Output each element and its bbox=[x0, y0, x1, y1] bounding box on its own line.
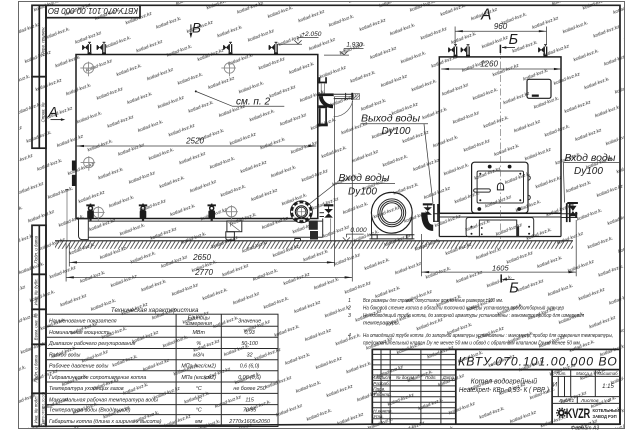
svg-text:°С: °С bbox=[196, 386, 202, 392]
svg-text:Температура уходящих газов: Температура уходящих газов bbox=[49, 386, 124, 392]
svg-text:0,93: 0,93 bbox=[244, 330, 254, 336]
svg-text:Справ. №: Справ. № bbox=[41, 102, 46, 122]
svg-text:Разраб.: Разраб. bbox=[373, 381, 390, 386]
svg-text:КОТЕЛЬНЫЙ: КОТЕЛЬНЫЙ bbox=[593, 408, 620, 413]
svg-text:Номинальная мощность: Номинальная мощность bbox=[49, 330, 111, 336]
svg-text:На подводящий трубе котла, до: На подводящий трубе котла, до запорной а… bbox=[363, 312, 584, 319]
svg-text:мм: мм bbox=[195, 419, 203, 425]
svg-text:Инв. № дубл.: Инв. № дубл. bbox=[33, 278, 38, 305]
svg-text:1: 1 bbox=[348, 298, 351, 304]
svg-text:не более 250: не более 250 bbox=[233, 386, 265, 392]
svg-text:Подп. и дата: Подп. и дата bbox=[33, 236, 38, 264]
svg-text:А: А bbox=[480, 7, 491, 24]
svg-text:КВТУ.070.101.00.000 ВО: КВТУ.070.101.00.000 ВО bbox=[48, 6, 138, 15]
svg-text:см. п. 2: см. п. 2 bbox=[236, 96, 270, 107]
svg-text:Подп.: Подп. bbox=[425, 375, 436, 380]
svg-text:2: 2 bbox=[607, 398, 611, 404]
svg-text:КВТУ.070.101.00.000 ВО: КВТУ.070.101.00.000 ВО bbox=[458, 354, 618, 368]
svg-text:Габариты котла (длина х ширина: Габариты котла (длина х ширина х высота) bbox=[49, 419, 162, 425]
svg-text:И: И bbox=[553, 382, 558, 388]
svg-text:Диапазон рабочего регулировани: Диапазон рабочего регулирования bbox=[48, 341, 136, 347]
svg-text:+2.050: +2.050 bbox=[301, 31, 321, 38]
svg-text:На боковой стенке котла в обла: На боковой стенке котла в области топочн… bbox=[363, 305, 564, 312]
svg-text:0,6 (6,0): 0,6 (6,0) bbox=[240, 364, 260, 370]
svg-text:КВТУ.070.101.00.000: КВТУ.070.101.00.000 bbox=[41, 392, 45, 424]
svg-text:1605: 1605 bbox=[492, 264, 510, 273]
svg-text:Котел водогрейный: Котел водогрейный bbox=[471, 377, 538, 385]
svg-text:70/95: 70/95 bbox=[243, 407, 256, 413]
svg-text:Все размеры для справок, допус: Все размеры для справок, допустимое откл… bbox=[363, 298, 503, 304]
svg-text:2520: 2520 bbox=[185, 137, 204, 146]
svg-text:Дата: Дата bbox=[442, 375, 455, 380]
svg-text:50-100: 50-100 bbox=[241, 341, 258, 347]
svg-text:Пров.: Пров. bbox=[373, 387, 385, 392]
svg-text:2650: 2650 bbox=[192, 253, 211, 262]
svg-text:Лист: Лист bbox=[379, 375, 391, 380]
svg-text:Максимальная рабочая температу: Максимальная рабочая температура воды bbox=[49, 397, 158, 403]
svg-text:Н.контр.: Н.контр. bbox=[373, 408, 392, 413]
svg-text:А: А bbox=[47, 105, 58, 121]
svg-text:1: 1 bbox=[572, 398, 575, 404]
svg-text:Инв. № подл.: Инв. № подл. bbox=[33, 396, 38, 423]
svg-text:32: 32 bbox=[247, 353, 253, 359]
svg-text:В: В bbox=[192, 21, 201, 36]
svg-text:м3/ч: м3/ч bbox=[193, 353, 204, 359]
svg-text:%: % bbox=[196, 341, 201, 347]
svg-text:Вход воды: Вход воды bbox=[565, 152, 616, 164]
svg-text:1260: 1260 bbox=[480, 60, 498, 69]
svg-text:Heatexpert- КВр -0,93- К ( РВР: Heatexpert- КВр -0,93- К ( РВР ) bbox=[459, 387, 549, 394]
svg-text:ЗАВОД РЭП: ЗАВОД РЭП bbox=[593, 414, 617, 419]
svg-text:температуры.: температуры. bbox=[363, 320, 400, 326]
svg-text:№ докум.: № докум. bbox=[396, 375, 415, 380]
svg-text:1:15: 1:15 bbox=[602, 384, 614, 390]
svg-text:Б: Б bbox=[509, 32, 518, 48]
svg-text:Dy100: Dy100 bbox=[348, 187, 377, 198]
svg-text:Значение: Значение bbox=[238, 318, 261, 324]
svg-text:0,06 (0,6): 0,06 (0,6) bbox=[238, 375, 261, 381]
svg-text:0.000: 0.000 bbox=[350, 227, 367, 234]
svg-text:Лит.: Лит. bbox=[555, 371, 566, 376]
svg-text:4: 4 bbox=[348, 333, 351, 339]
svg-text:МПа (кгс/см2): МПа (кгс/см2) bbox=[181, 364, 216, 370]
svg-text:Dy100: Dy100 bbox=[382, 126, 411, 137]
svg-text:115: 115 bbox=[245, 397, 253, 403]
svg-text:Расход воды: Расход воды bbox=[49, 353, 80, 359]
svg-text:2770х1605х2050: 2770х1605х2050 bbox=[228, 419, 270, 425]
svg-text:Техническая характеристика: Техническая характеристика bbox=[111, 307, 199, 314]
svg-text:Подп. и дата: Подп. и дата bbox=[33, 355, 38, 383]
svg-text:2770: 2770 bbox=[194, 268, 213, 277]
svg-text:МПа (кгс/см2): МПа (кгс/см2) bbox=[181, 375, 216, 381]
svg-text:Рабочее давление воды: Рабочее давление воды bbox=[49, 364, 108, 370]
svg-text:предохранительный клапан Dу н: предохранительный клапан Dу не менее 50 … bbox=[363, 340, 581, 347]
svg-text:Вход воды: Вход воды bbox=[339, 172, 390, 184]
svg-text:°С: °С bbox=[196, 397, 202, 403]
svg-text:На отводящий трубе котла ,до з: На отводящий трубе котла ,до запорной ар… bbox=[363, 332, 613, 339]
svg-text:3: 3 bbox=[348, 313, 351, 319]
svg-text:Утв.: Утв. bbox=[373, 414, 383, 419]
svg-text:2: 2 bbox=[347, 306, 351, 312]
svg-text:Выход воды: Выход воды bbox=[361, 113, 420, 125]
svg-text:Т.контр.: Т.контр. bbox=[373, 392, 392, 397]
svg-text:Взам. инв. №: Взам. инв. № bbox=[33, 313, 38, 340]
svg-text:Масса: Масса bbox=[576, 371, 589, 376]
svg-text:Масштаб: Масштаб bbox=[597, 371, 618, 376]
svg-text:1.930: 1.930 bbox=[346, 42, 363, 49]
svg-text:Перв. примен.: Перв. примен. bbox=[41, 26, 46, 55]
svg-text:960: 960 bbox=[494, 22, 508, 31]
svg-text:KVZR: KVZR bbox=[566, 405, 591, 422]
svg-text:Б: Б bbox=[509, 281, 518, 297]
svg-text:Лист: Лист bbox=[558, 398, 571, 404]
svg-text:Наименование показателя: Наименование показателя bbox=[49, 318, 117, 324]
svg-text:°С: °С bbox=[196, 407, 202, 413]
svg-text:Dy100: Dy100 bbox=[574, 166, 603, 177]
svg-text:Температура воды (Вход/выход): Температура воды (Вход/выход) bbox=[49, 407, 131, 413]
svg-text:Листов: Листов bbox=[580, 398, 599, 404]
svg-text:МВт: МВт bbox=[193, 330, 206, 336]
svg-text:Гидравлическое сопротивление к: Гидравлическое сопротивление котла bbox=[49, 375, 146, 381]
svg-text:Формат А3: Формат А3 bbox=[571, 425, 599, 430]
svg-text:измерения: измерения bbox=[185, 321, 212, 327]
